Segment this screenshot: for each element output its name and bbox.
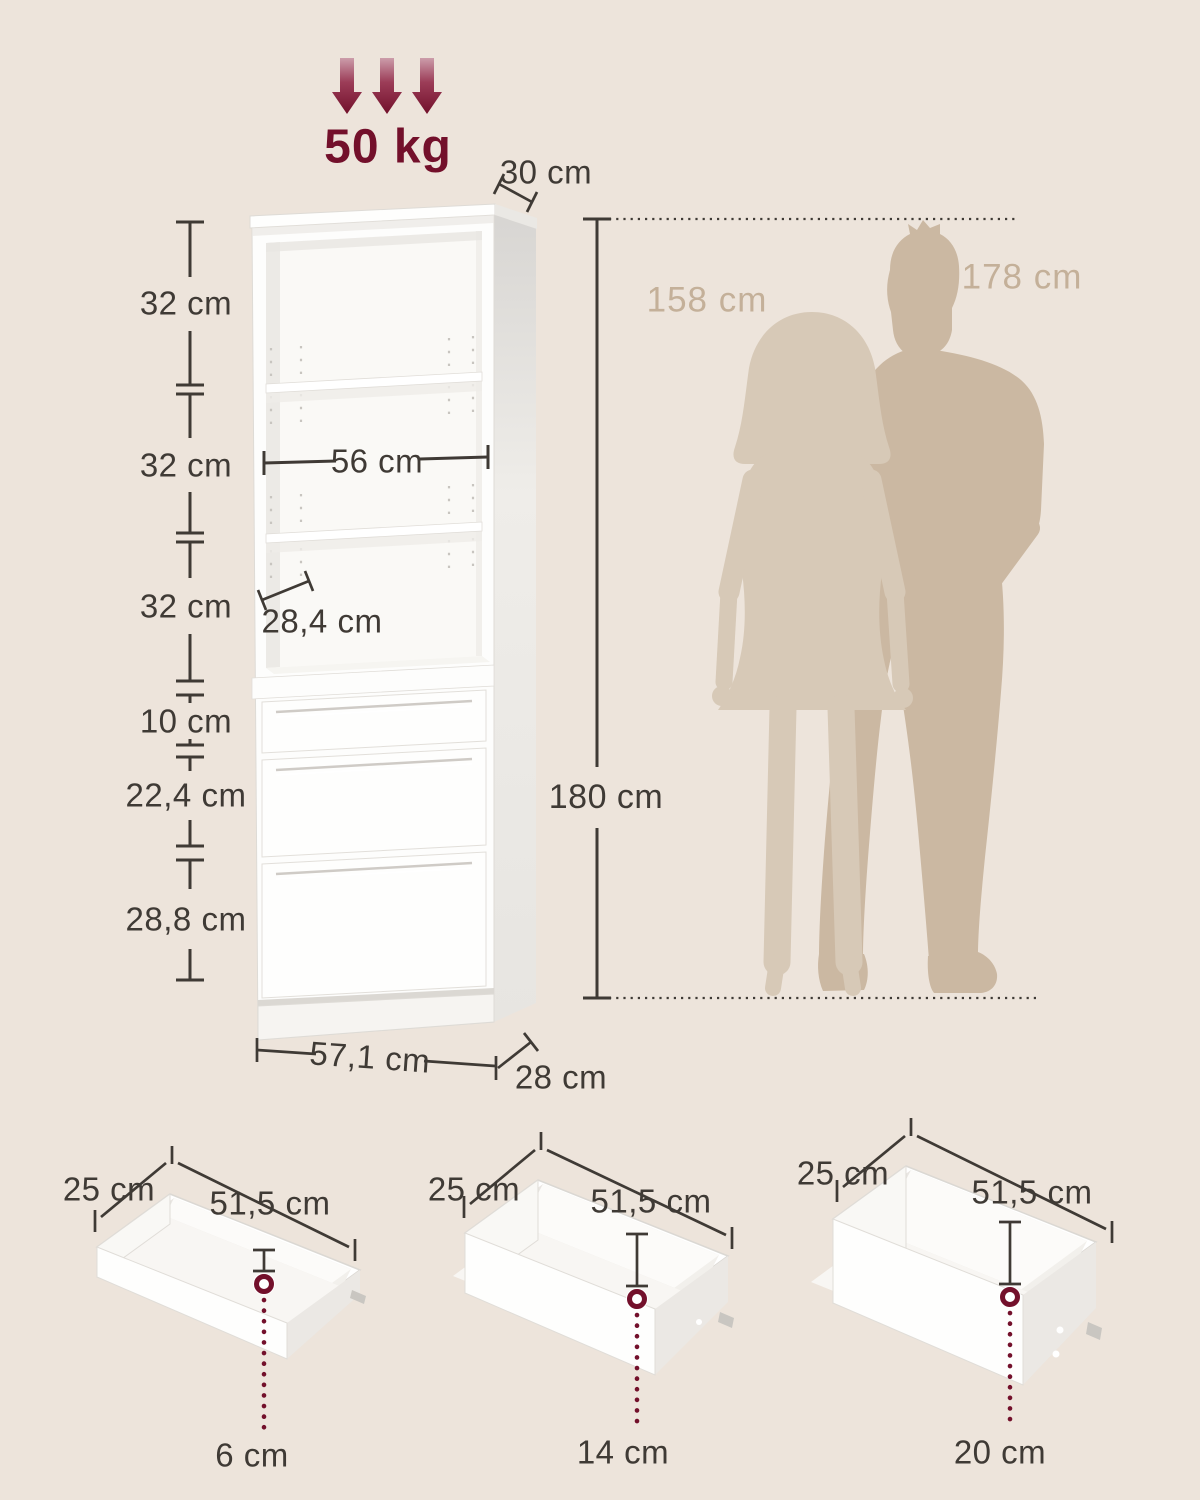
cabinet-interior-right-shadow <box>476 231 482 656</box>
woman-left-foot <box>773 962 777 988</box>
woman-right-hand <box>893 688 913 708</box>
drawer-3-screw-1 <box>1057 1327 1064 1334</box>
diagram-canvas: 50 kg <box>0 0 1200 1500</box>
woman-left-forearm <box>724 592 729 682</box>
dimension-diagram: 50 kg <box>0 0 1200 1500</box>
base-depth-label: 28 cm <box>515 1059 607 1096</box>
total-width-label: 57,1 cm <box>308 1034 431 1079</box>
drawer-2-depth-label: 25 cm <box>428 1171 520 1208</box>
drawer-2-diagram: 25 cm 51,5 cm 14 cm <box>428 1132 734 1471</box>
drawer-3-diagram: 25 cm 51,5 cm 20 cm <box>797 1118 1112 1471</box>
drawer-2-slide-pin <box>718 1312 734 1328</box>
drawer-3-width-label: 51,5 cm <box>972 1174 1093 1211</box>
drawer-2-width-label: 51,5 cm <box>591 1183 712 1220</box>
woman-hair-head <box>733 312 890 464</box>
compartment-1-height-label: 32 cm <box>140 285 232 322</box>
woman-right-leg <box>841 708 849 962</box>
man-height-label: 178 cm <box>962 258 1083 297</box>
cabinet-side-face <box>494 214 536 1022</box>
large-drawer-height-label: 28,8 cm <box>126 901 247 938</box>
load-capacity-label: 50 kg <box>324 121 452 174</box>
top-depth-label: 30 cm <box>500 154 592 191</box>
woman-height-label: 158 cm <box>647 281 768 320</box>
load-capacity-arrows-icon <box>332 58 442 114</box>
man-head <box>887 220 959 354</box>
woman-left-leg <box>777 708 783 962</box>
drawer-3-height-label: 20 cm <box>954 1434 1046 1471</box>
woman-right-forearm <box>895 592 901 684</box>
inner-depth-label: 28,4 cm <box>262 603 383 640</box>
drawer-3-depth-label: 25 cm <box>797 1155 889 1192</box>
drawer-2-screw <box>696 1319 702 1325</box>
drawer-3-slide-pin <box>1086 1322 1102 1340</box>
drawer-1-height-label: 6 cm <box>215 1437 289 1474</box>
inner-width-label: 56 cm <box>331 443 423 480</box>
drawer-1-width-label: 51,5 cm <box>210 1185 331 1222</box>
compartment-3-height-label: 32 cm <box>140 588 232 625</box>
drawer-1-depth-label: 25 cm <box>63 1171 155 1208</box>
woman-right-foot <box>849 962 853 988</box>
man-right-shoe <box>928 952 997 993</box>
compartment-2-height-label: 32 cm <box>140 447 232 484</box>
total-height-label: 180 cm <box>549 778 664 816</box>
drawer-1-marker-circle <box>257 1277 272 1292</box>
drawer-3-marker-circle <box>1003 1290 1018 1305</box>
small-drawer-height-label: 10 cm <box>140 703 232 740</box>
drawer-2-marker-circle <box>630 1292 645 1307</box>
drawer-1-diagram: 25 cm 51,5 cm 6 cm <box>63 1146 366 1474</box>
medium-drawer-height-label: 22,4 cm <box>126 777 247 814</box>
woman-left-hand <box>712 686 732 706</box>
drawer-2-height-label: 14 cm <box>577 1434 669 1471</box>
drawer-3-screw-2 <box>1053 1351 1060 1358</box>
